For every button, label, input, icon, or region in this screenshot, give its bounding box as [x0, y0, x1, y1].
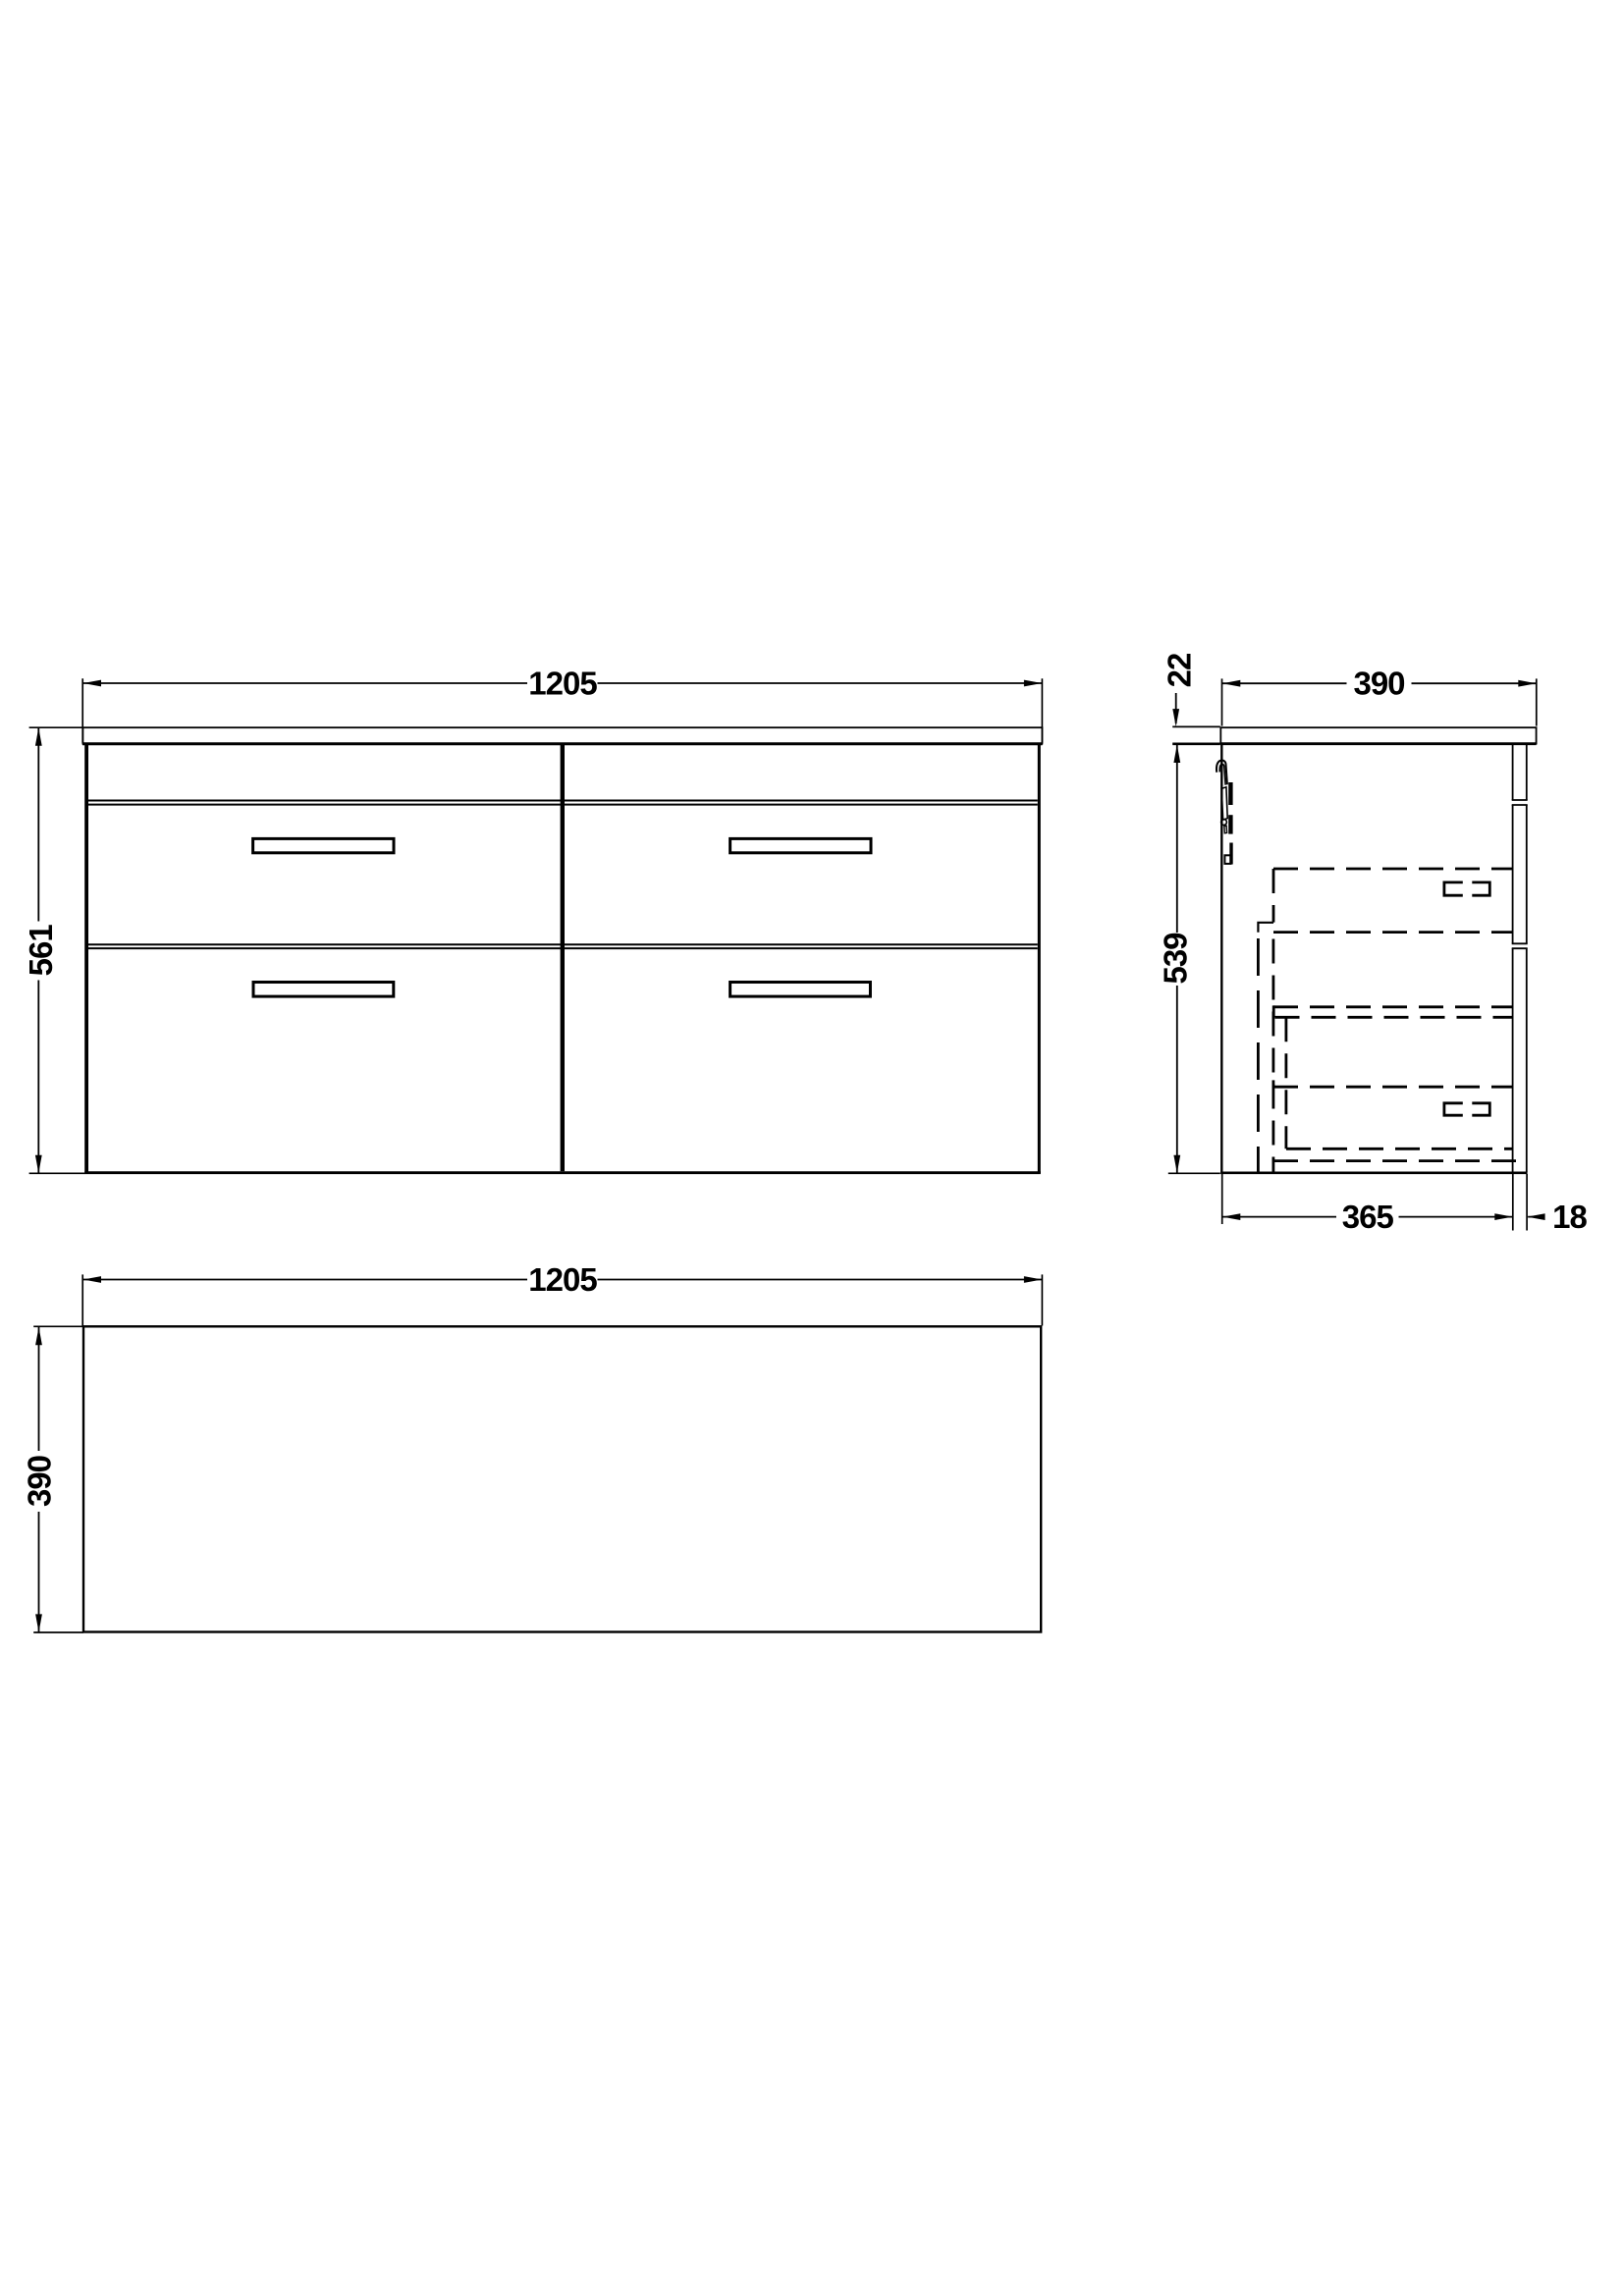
svg-text:390: 390 — [22, 1456, 58, 1507]
svg-text:1205: 1205 — [528, 1261, 597, 1298]
svg-text:18: 18 — [1552, 1199, 1587, 1235]
svg-text:365: 365 — [1342, 1199, 1394, 1235]
svg-text:561: 561 — [23, 925, 59, 977]
svg-text:539: 539 — [1158, 933, 1194, 985]
svg-text:22: 22 — [1161, 653, 1197, 687]
svg-text:1205: 1205 — [528, 666, 597, 702]
svg-text:390: 390 — [1353, 666, 1404, 702]
